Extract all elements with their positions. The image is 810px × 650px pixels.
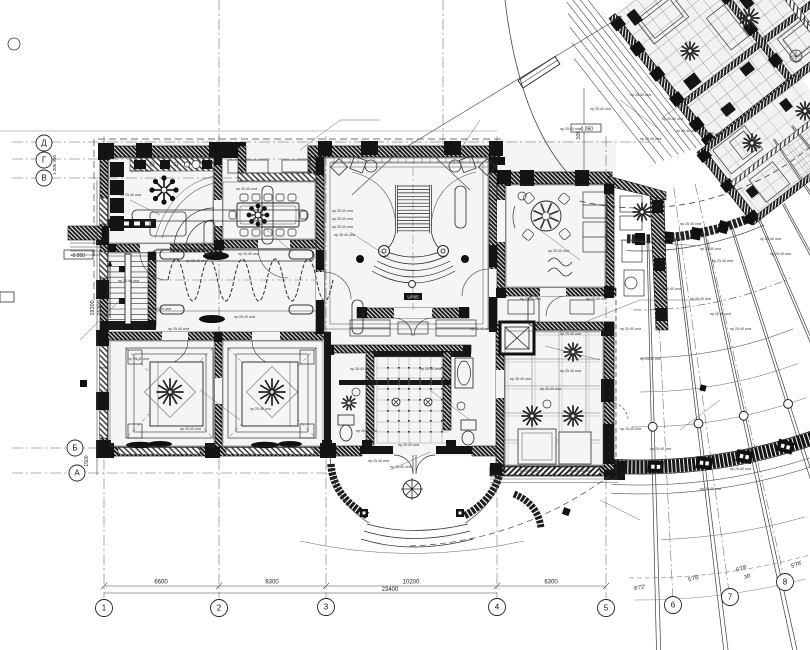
svg-text:1: 1 [102, 604, 107, 613]
svg-text:пр 25.40 отм: пр 25.40 отм [130, 169, 152, 173]
svg-text:пр 25.40 отм: пр 25.40 отм [730, 467, 752, 471]
svg-text:пр 25.40 отм: пр 25.40 отм [700, 247, 722, 251]
svg-text:8: 8 [783, 578, 788, 587]
svg-text:пр 25.40 отм: пр 25.40 отм [676, 129, 698, 133]
svg-text:пр 25.40 отм: пр 25.40 отм [560, 369, 582, 373]
svg-text:пр 25.40 отм: пр 25.40 отм [332, 217, 354, 221]
svg-text:пр 25.40 отм: пр 25.40 отм [168, 327, 190, 331]
svg-text:пр 25.40 отм: пр 25.40 отм [470, 327, 492, 331]
svg-text:6: 6 [671, 601, 676, 610]
svg-text:4: 4 [495, 603, 500, 612]
svg-text:пр 25.40 отм: пр 25.40 отм [640, 137, 662, 141]
svg-text:пр 25.40 отм: пр 25.40 отм [662, 117, 684, 121]
svg-text:пр 25.40 отм: пр 25.40 отм [650, 447, 672, 451]
svg-text:пр 25.40 отм: пр 25.40 отм [560, 127, 582, 131]
svg-text:10200: 10200 [403, 580, 420, 586]
svg-text:15300: 15300 [97, 300, 103, 315]
svg-text:6600: 6600 [154, 580, 168, 586]
svg-text:пр 25.40 отм: пр 25.40 отм [150, 307, 172, 311]
svg-text:пр 25.40 отм: пр 25.40 отм [640, 357, 662, 361]
svg-text:пр 25.40 отм: пр 25.40 отм [770, 252, 792, 256]
svg-text:пр 25.40 отм: пр 25.40 отм [620, 327, 642, 331]
svg-text:пр 25.40 отм: пр 25.40 отм [760, 237, 782, 241]
svg-text:пр 25.40 отм: пр 25.40 отм [356, 429, 378, 433]
svg-text:пр 25.40 отм: пр 25.40 отм [368, 459, 390, 463]
svg-text:Б: Б [72, 444, 77, 453]
svg-text:5: 5 [604, 604, 609, 613]
svg-text:пр 25.40 отм: пр 25.40 отм [700, 132, 722, 136]
svg-text:пр 25.40 отм: пр 25.40 отм [120, 193, 142, 197]
svg-text:пр 25.40 отм: пр 25.40 отм [560, 332, 582, 336]
svg-text:пр 25.40 отм: пр 25.40 отм [730, 327, 752, 331]
svg-text:пр 25.40 отм: пр 25.40 отм [234, 315, 256, 319]
svg-text:3: 3 [324, 603, 329, 612]
svg-text:19200: 19200 [90, 300, 96, 315]
svg-text:1500: 1500 [84, 455, 90, 466]
svg-text:пр 25.40 отм: пр 25.40 отм [520, 297, 542, 301]
svg-text:1.200 300: 1.200 300 [52, 154, 57, 175]
svg-text:Г: Г [42, 156, 47, 165]
svg-text:пр 25.40 отм: пр 25.40 отм [250, 407, 272, 411]
svg-text:6300: 6300 [265, 580, 279, 586]
svg-text:пр 25.40 отм: пр 25.40 отм [332, 225, 354, 229]
svg-text:пр 25.40 отм: пр 25.40 отм [118, 279, 140, 283]
svg-text:А: А [74, 469, 80, 478]
svg-text:пр 25.40 отм: пр 25.40 отм [690, 297, 712, 301]
svg-text:пр 25.40 отм: пр 25.40 отм [710, 312, 732, 316]
svg-text:2: 2 [217, 604, 222, 613]
svg-text:пр 25.40 отм: пр 25.40 отм [520, 469, 542, 473]
svg-text:пр 25.40 отм: пр 25.40 отм [236, 187, 258, 191]
svg-text:пр 25.40 отм: пр 25.40 отм [660, 287, 682, 291]
svg-text:Д: Д [41, 139, 47, 148]
svg-text:пр 25.40 отм: пр 25.40 отм [570, 469, 592, 473]
svg-text:23400: 23400 [382, 587, 399, 593]
svg-text:пр 25.40 отм: пр 25.40 отм [586, 297, 608, 301]
svg-text:пр 25.40 отм: пр 25.40 отм [630, 93, 652, 97]
svg-text:-0.050: -0.050 [71, 253, 85, 259]
svg-text:7: 7 [728, 593, 733, 602]
svg-text:В: В [41, 174, 46, 183]
svg-text:пр 25.40 отм: пр 25.40 отм [620, 427, 642, 431]
svg-text:пр 25.40 отм: пр 25.40 отм [398, 443, 420, 447]
svg-text:-0.050: -0.050 [579, 127, 593, 133]
svg-text:6300: 6300 [544, 580, 558, 586]
svg-text:пр 25.40 отм: пр 25.40 отм [180, 427, 202, 431]
svg-text:пр 25.40 отм: пр 25.40 отм [712, 259, 734, 263]
svg-text:пр 25.40 отм: пр 25.40 отм [590, 107, 612, 111]
svg-text:пр 25.40 отм: пр 25.40 отм [700, 487, 722, 491]
svg-text:пр 25.40 отм: пр 25.40 отм [540, 387, 562, 391]
svg-text:пр 25.40 отм: пр 25.40 отм [238, 252, 260, 256]
svg-text:пр 25.40 отм: пр 25.40 отм [128, 357, 150, 361]
svg-text:пр 25.40 отм: пр 25.40 отм [420, 367, 442, 371]
svg-text:пр 25.40 отм: пр 25.40 отм [680, 222, 702, 226]
svg-text:пр 25.40 отм: пр 25.40 отм [510, 377, 532, 381]
svg-text:пр 25.40 отм: пр 25.40 отм [332, 209, 354, 213]
svg-text:пр 25.40 отм: пр 25.40 отм [660, 237, 682, 241]
svg-text:пр 25.40 отм: пр 25.40 отм [186, 259, 208, 263]
svg-text:пр 25.40 отм: пр 25.40 отм [350, 367, 372, 371]
